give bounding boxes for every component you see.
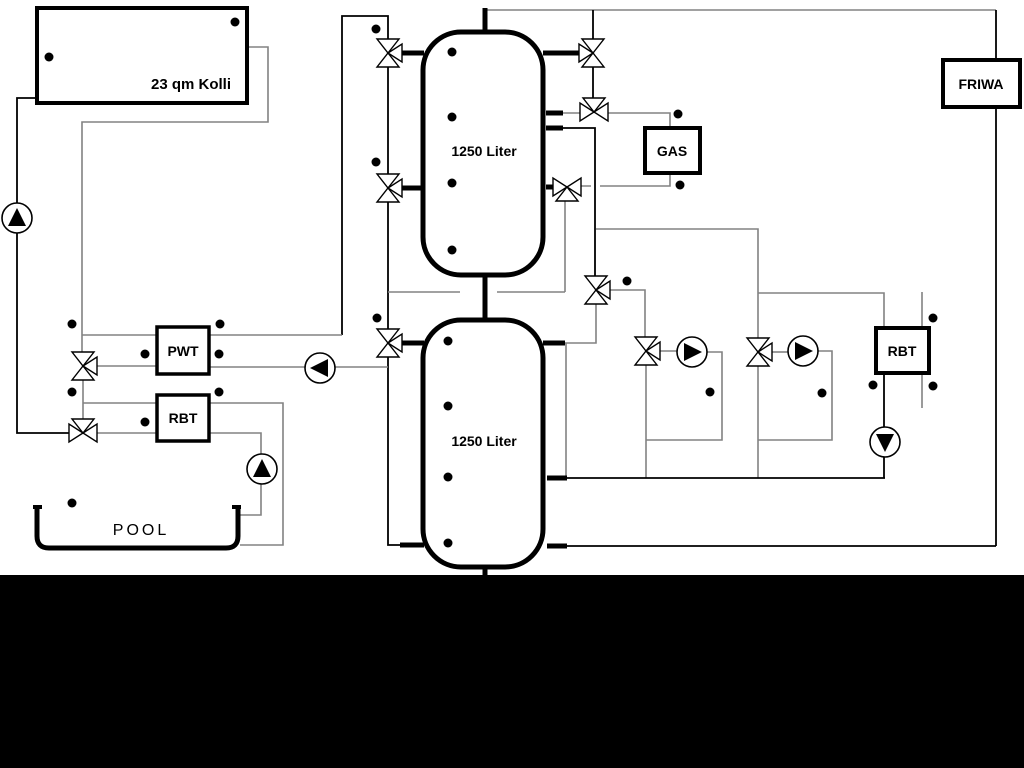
three-way-valve-icon-tank1-right-top [579, 39, 604, 67]
friwa-label: FRIWA [958, 76, 1003, 92]
hydraulic-schematic: 23 qm Kolli 1250 Liter 1250 Liter PWT RB… [0, 0, 1024, 768]
pump-icon-heating-1 [677, 337, 707, 367]
three-way-valve-icon-solar-mid [377, 174, 402, 202]
hydraulic-schematic-canvas: 23 qm Kolli 1250 Liter 1250 Liter PWT RB… [0, 0, 1024, 768]
temperature-sensor-icon [706, 388, 724, 397]
three-way-valve-icon-gas-supply [580, 98, 608, 121]
temperature-sensor-icon [372, 25, 390, 34]
three-way-valve-icon-distribution [585, 276, 610, 304]
three-way-valve-icon-mixer-1 [635, 337, 660, 365]
black-bottom-band [0, 575, 1024, 768]
gas-label: GAS [657, 143, 687, 159]
three-way-valve-icon-gas-return [553, 178, 581, 201]
pool-label: POOL [113, 522, 169, 539]
three-way-valve-icon-pwt [72, 352, 97, 380]
pump-icon-pwt [305, 353, 335, 383]
temperature-sensor-icon [665, 110, 683, 119]
temperature-sensor-icon [215, 350, 224, 368]
rbt-left-label: RBT [169, 410, 198, 426]
pump-icon-pool [247, 454, 277, 484]
three-way-valve-icon-tank2-left [377, 329, 402, 357]
pump-icon-rbt-right [870, 427, 900, 457]
temperature-sensor-icon [372, 158, 390, 167]
temperature-sensor-icon [68, 499, 77, 517]
rbt-right-label: RBT [888, 343, 917, 359]
buffer-tank-top-label: 1250 Liter [451, 143, 517, 159]
three-way-valve-icon-solar-top [377, 39, 402, 67]
pwt-label: PWT [167, 343, 199, 359]
pump-icon-solar [2, 203, 32, 233]
temperature-sensor-icon [141, 350, 150, 368]
buffer-tank-bottom-label: 1250 Liter [451, 433, 517, 449]
three-way-valve-icon-rbt-left [69, 419, 97, 442]
temperature-sensor-icon [623, 277, 632, 295]
solar-collector-label: 23 qm Kolli [151, 76, 231, 93]
pump-icon-heating-2 [788, 336, 818, 366]
three-way-valve-icon-mixer-2 [747, 338, 772, 366]
